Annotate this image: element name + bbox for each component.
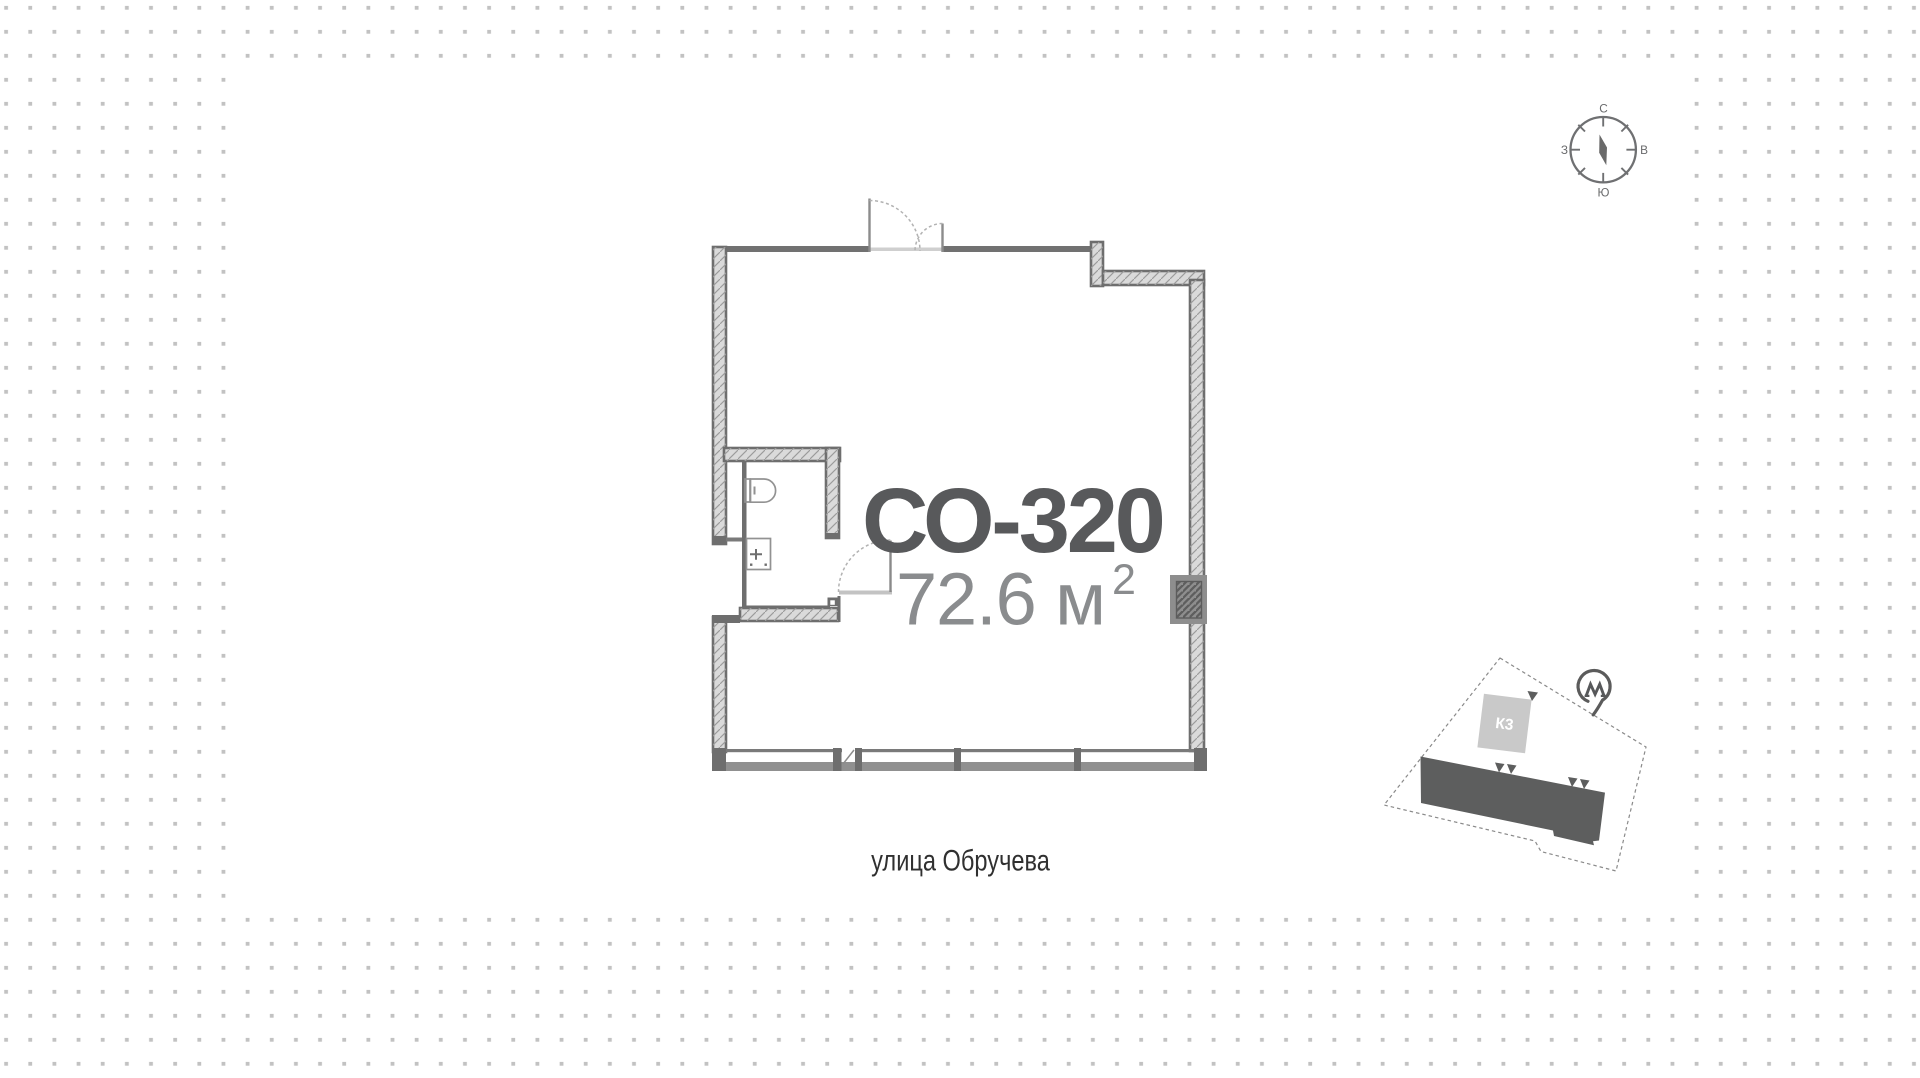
svg-text:72.6 м: 72.6 м bbox=[896, 558, 1105, 641]
svg-text:В: В bbox=[1640, 143, 1648, 157]
svg-text:улица Обручева: улица Обручева bbox=[871, 844, 1050, 877]
svg-text:С: С bbox=[1599, 102, 1608, 116]
svg-text:К3: К3 bbox=[1494, 715, 1514, 734]
svg-text:З: З bbox=[1561, 143, 1568, 157]
svg-text:2: 2 bbox=[1112, 556, 1136, 604]
svg-text:Ю: Ю bbox=[1598, 186, 1610, 200]
